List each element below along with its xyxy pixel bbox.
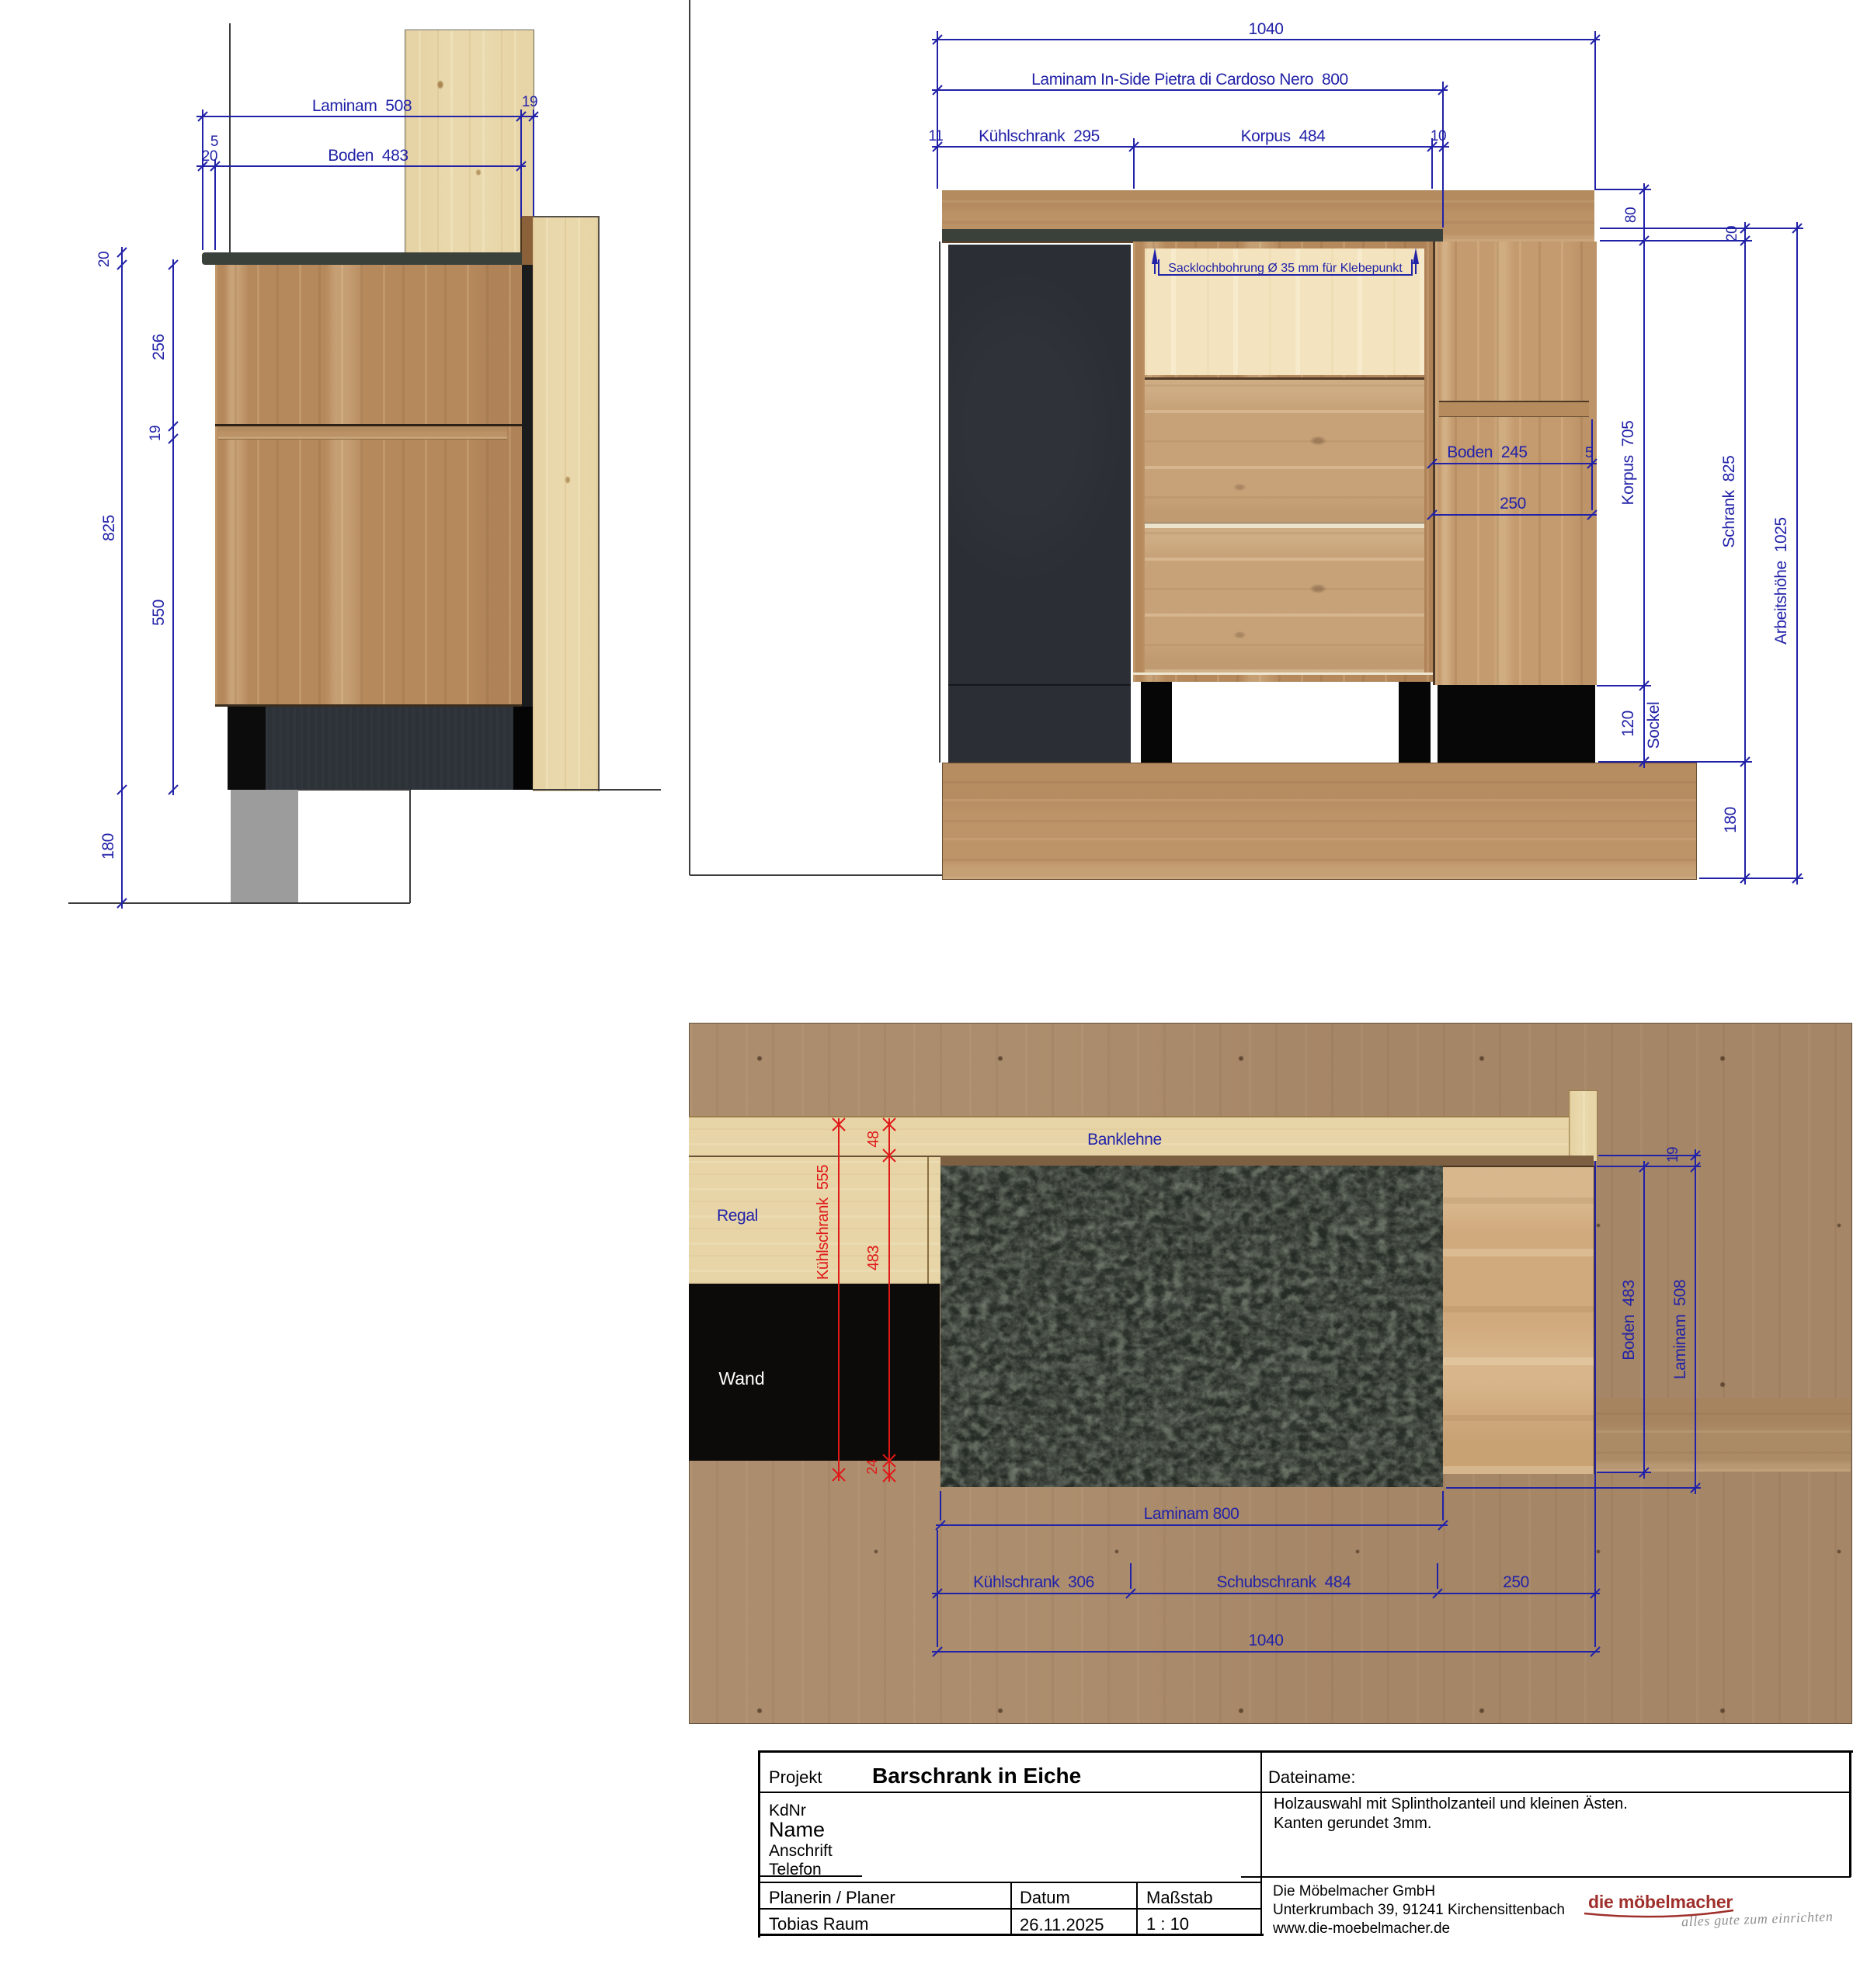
svg-text:Laminam 800: Laminam 800: [1144, 1505, 1239, 1523]
svg-text:19: 19: [148, 426, 164, 441]
svg-text:24: 24: [864, 1459, 880, 1475]
svg-text:80: 80: [1623, 207, 1639, 223]
svg-text:Schubschrank 484: Schubschrank 484: [1217, 1573, 1352, 1591]
svg-text:Laminam In-Side Pietra di Card: Laminam In-Side Pietra di Cardoso Nero 8…: [1031, 71, 1348, 89]
svg-text:11: 11: [929, 128, 944, 144]
svg-text:Arbeitshöhe 1025: Arbeitshöhe 1025: [1772, 517, 1790, 645]
svg-text:Boden 245: Boden 245: [1447, 443, 1527, 461]
svg-text:256: 256: [150, 334, 168, 360]
svg-text:10: 10: [1431, 128, 1446, 144]
svg-text:180: 180: [99, 833, 117, 860]
svg-text:Korpus 705: Korpus 705: [1619, 421, 1637, 506]
svg-text:Kühlschrank 555: Kühlschrank 555: [815, 1165, 832, 1280]
svg-text:19: 19: [522, 94, 537, 110]
svg-text:250: 250: [1500, 495, 1526, 513]
svg-text:Banklehne: Banklehne: [1087, 1131, 1162, 1149]
svg-text:20: 20: [202, 148, 217, 165]
svg-text:20: 20: [1724, 226, 1740, 242]
svg-text:Laminam 508: Laminam 508: [1671, 1280, 1689, 1379]
svg-text:19: 19: [1665, 1147, 1681, 1163]
svg-text:Laminam 508: Laminam 508: [312, 97, 412, 115]
svg-text:Sockel: Sockel: [1645, 702, 1663, 749]
svg-text:48: 48: [865, 1131, 882, 1148]
svg-text:250: 250: [1503, 1573, 1529, 1591]
svg-text:1040: 1040: [1248, 1632, 1283, 1649]
svg-text:483: 483: [865, 1246, 882, 1270]
svg-text:Sacklochbohrung Ø 35 mm für Kl: Sacklochbohrung Ø 35 mm für Klebepunkt: [1168, 262, 1403, 275]
svg-text:Kühlschrank 295: Kühlschrank 295: [979, 127, 1100, 145]
svg-text:Regal: Regal: [717, 1207, 758, 1225]
svg-text:Schrank 825: Schrank 825: [1720, 456, 1738, 548]
svg-text:Kühlschrank 306: Kühlschrank 306: [973, 1573, 1094, 1591]
svg-text:5: 5: [210, 134, 218, 150]
svg-text:Boden 483: Boden 483: [1620, 1280, 1638, 1360]
svg-text:120: 120: [1619, 711, 1637, 737]
svg-text:825: 825: [100, 515, 118, 541]
svg-text:Korpus 484: Korpus 484: [1241, 127, 1326, 145]
svg-text:1040: 1040: [1248, 20, 1283, 38]
svg-text:550: 550: [150, 600, 168, 626]
svg-text:Wand: Wand: [718, 1368, 764, 1388]
svg-text:Boden 483: Boden 483: [328, 147, 408, 165]
svg-text:180: 180: [1722, 807, 1740, 833]
svg-text:20: 20: [96, 252, 113, 267]
